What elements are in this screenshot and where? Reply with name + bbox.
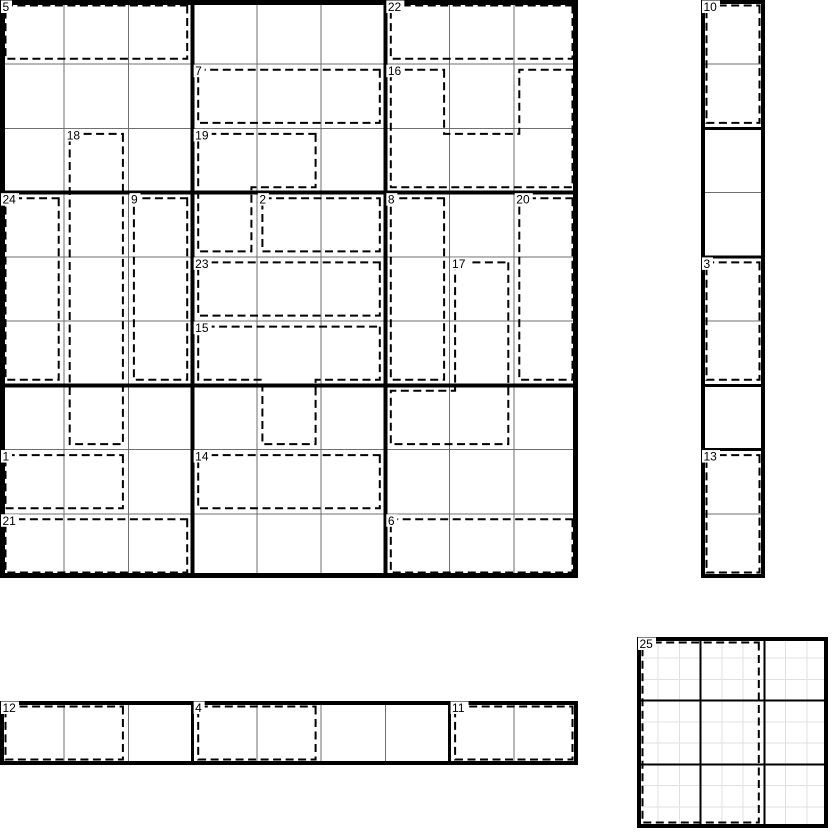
main-grid-cage-label: 1: [3, 450, 10, 464]
main-grid-cell-r5c5[interactable]: [321, 321, 385, 385]
main-grid-cell-r0c8[interactable]: [514, 0, 578, 64]
main-grid-cell-r0c5[interactable]: [321, 0, 385, 64]
main-grid-cell-r7c6[interactable]: [385, 450, 449, 514]
main-grid-cell-r0c1[interactable]: [64, 0, 128, 64]
main-grid-cell-r8c4[interactable]: [257, 514, 321, 578]
main-grid-cell-r2c6[interactable]: [385, 128, 449, 192]
main-grid-cell-r1c7[interactable]: [450, 64, 514, 128]
mini-grid-cage-label: 25: [640, 637, 654, 651]
main-grid-cell-r5c6[interactable]: [385, 321, 449, 385]
main-grid-cell-r2c7[interactable]: [450, 128, 514, 192]
main-grid-cell-r1c2[interactable]: [128, 64, 192, 128]
row-strip-cell-r0c4[interactable]: [257, 701, 321, 765]
main-grid-cell-r0c4[interactable]: [257, 0, 321, 64]
main-grid-cell-r4c1[interactable]: [64, 257, 128, 321]
main-grid-cage-label: 24: [3, 193, 17, 207]
main-grid-cell-r6c1[interactable]: [64, 385, 128, 449]
main-grid-cell-r1c5[interactable]: [321, 64, 385, 128]
main-grid-cell-r0c7[interactable]: [450, 0, 514, 64]
main-grid-cell-r1c0[interactable]: [0, 64, 64, 128]
main-grid-cell-r2c4[interactable]: [257, 128, 321, 192]
main-grid-cell-r7c7[interactable]: [450, 450, 514, 514]
main-grid-cell-r3c7[interactable]: [450, 193, 514, 257]
main-grid-cell-r8c1[interactable]: [64, 514, 128, 578]
main-grid-cage-label: 18: [67, 128, 81, 142]
main-grid-cage-label: 20: [516, 193, 530, 207]
main-grid-cell-r5c0[interactable]: [0, 321, 64, 385]
row-strip-cell-r0c8[interactable]: [514, 701, 578, 765]
main-grid-cell-r6c8[interactable]: [514, 385, 578, 449]
main-grid-cell-r4c5[interactable]: [321, 257, 385, 321]
main-grid-cell-r8c3[interactable]: [193, 514, 257, 578]
main-grid-cell-r6c4[interactable]: [257, 385, 321, 449]
main-grid-cell-r1c8[interactable]: [514, 64, 578, 128]
mini-grid-cell-r0c1[interactable]: [701, 637, 765, 701]
column-strip-cell-r2c0[interactable]: [701, 128, 765, 192]
main-grid-cell-r7c8[interactable]: [514, 450, 578, 514]
main-grid-cage-label: 19: [195, 128, 209, 142]
mini-grid-cell-r2c0[interactable]: [637, 764, 701, 828]
main-grid-cage-label: 17: [452, 257, 466, 271]
main-grid-cell-r5c7[interactable]: [450, 321, 514, 385]
main-grid-cell-r1c4[interactable]: [257, 64, 321, 128]
main-grid-cage-label: 21: [3, 514, 17, 528]
mini-grid-cell-r0c2[interactable]: [764, 637, 828, 701]
column-strip-cell-r5c0[interactable]: [701, 321, 765, 385]
main-grid-cell-r4c2[interactable]: [128, 257, 192, 321]
row-strip-cell-r0c2[interactable]: [128, 701, 192, 765]
row-strip-cell-r0c6[interactable]: [385, 701, 449, 765]
main-grid-cage-label: 23: [195, 257, 209, 271]
main-grid-cell-r6c5[interactable]: [321, 385, 385, 449]
main-grid-cell-r8c5[interactable]: [321, 514, 385, 578]
main-grid-cage-label: 14: [195, 450, 209, 464]
main-grid-cell-r3c1[interactable]: [64, 193, 128, 257]
main-grid-cell-r1c1[interactable]: [64, 64, 128, 128]
main-grid-cell-r6c2[interactable]: [128, 385, 192, 449]
main-grid-cell-r5c2[interactable]: [128, 321, 192, 385]
column-strip-cage-label: 3: [704, 257, 711, 271]
column-strip-cell-r1c0[interactable]: [701, 64, 765, 128]
column-strip-cell-r8c0[interactable]: [701, 514, 765, 578]
row-strip-cell-r0c5[interactable]: [321, 701, 385, 765]
main-grid-cell-r2c5[interactable]: [321, 128, 385, 192]
mini-grid-cell-r1c0[interactable]: [637, 701, 701, 765]
mini-grid-cell-r2c2[interactable]: [764, 764, 828, 828]
column-strip-cage-label: 13: [704, 450, 718, 464]
main-grid-cage-label: 7: [195, 64, 202, 78]
main-grid-cell-r7c1[interactable]: [64, 450, 128, 514]
main-grid-cell-r4c6[interactable]: [385, 257, 449, 321]
main-grid-cell-r2c0[interactable]: [0, 128, 64, 192]
main-grid-cell-r4c4[interactable]: [257, 257, 321, 321]
column-strip-cell-r6c0[interactable]: [701, 385, 765, 449]
main-grid-cage-label: 22: [388, 0, 402, 14]
main-grid-cell-r8c7[interactable]: [450, 514, 514, 578]
puzzle-scene: 5227161819249282023171511421610313124112…: [0, 0, 832, 832]
main-grid-cage-label: 8: [388, 193, 395, 207]
column-strip-cell-r3c0[interactable]: [701, 193, 765, 257]
mini-grid-cell-r2c1[interactable]: [701, 764, 765, 828]
main-grid-cell-r5c8[interactable]: [514, 321, 578, 385]
row-strip-cell-r0c1[interactable]: [64, 701, 128, 765]
main-grid-cell-r3c5[interactable]: [321, 193, 385, 257]
main-grid-cage-label: 15: [195, 321, 209, 335]
main-grid-cell-r3c3[interactable]: [193, 193, 257, 257]
main-grid-cell-r0c2[interactable]: [128, 0, 192, 64]
main-grid-cell-r6c0[interactable]: [0, 385, 64, 449]
main-grid-cage-label: 6: [388, 514, 395, 528]
main-grid-cell-r8c2[interactable]: [128, 514, 192, 578]
main-grid-cell-r7c2[interactable]: [128, 450, 192, 514]
main-grid-cage-label: 9: [131, 193, 138, 207]
main-grid-cage-label: 5: [3, 0, 10, 14]
main-grid-cell-r4c8[interactable]: [514, 257, 578, 321]
main-grid-cell-r8c8[interactable]: [514, 514, 578, 578]
main-grid-cell-r0c3[interactable]: [193, 0, 257, 64]
main-grid-cell-r7c5[interactable]: [321, 450, 385, 514]
row-strip-cage-label: 12: [3, 701, 17, 715]
mini-grid-cell-r1c1[interactable]: [701, 701, 765, 765]
mini-grid-cell-r1c2[interactable]: [764, 701, 828, 765]
main-grid-cell-r6c7[interactable]: [450, 385, 514, 449]
main-grid-cell-r4c0[interactable]: [0, 257, 64, 321]
main-grid-cell-r6c3[interactable]: [193, 385, 257, 449]
puzzle-canvas: 5227161819249282023171511421610313124112…: [0, 0, 832, 832]
main-grid-cage-label: 16: [388, 64, 402, 78]
row-strip-cage-label: 11: [452, 701, 465, 715]
main-grid-cell-r6c6[interactable]: [385, 385, 449, 449]
main-grid-cell-r2c8[interactable]: [514, 128, 578, 192]
column-strip-cage-label: 10: [704, 0, 718, 14]
main-grid-cage-label: 2: [259, 193, 266, 207]
main-grid-cell-r5c4[interactable]: [257, 321, 321, 385]
row-strip-cage-label: 4: [195, 701, 202, 715]
main-grid-cell-r7c4[interactable]: [257, 450, 321, 514]
main-grid-cell-r2c2[interactable]: [128, 128, 192, 192]
main-grid-cell-r5c1[interactable]: [64, 321, 128, 385]
